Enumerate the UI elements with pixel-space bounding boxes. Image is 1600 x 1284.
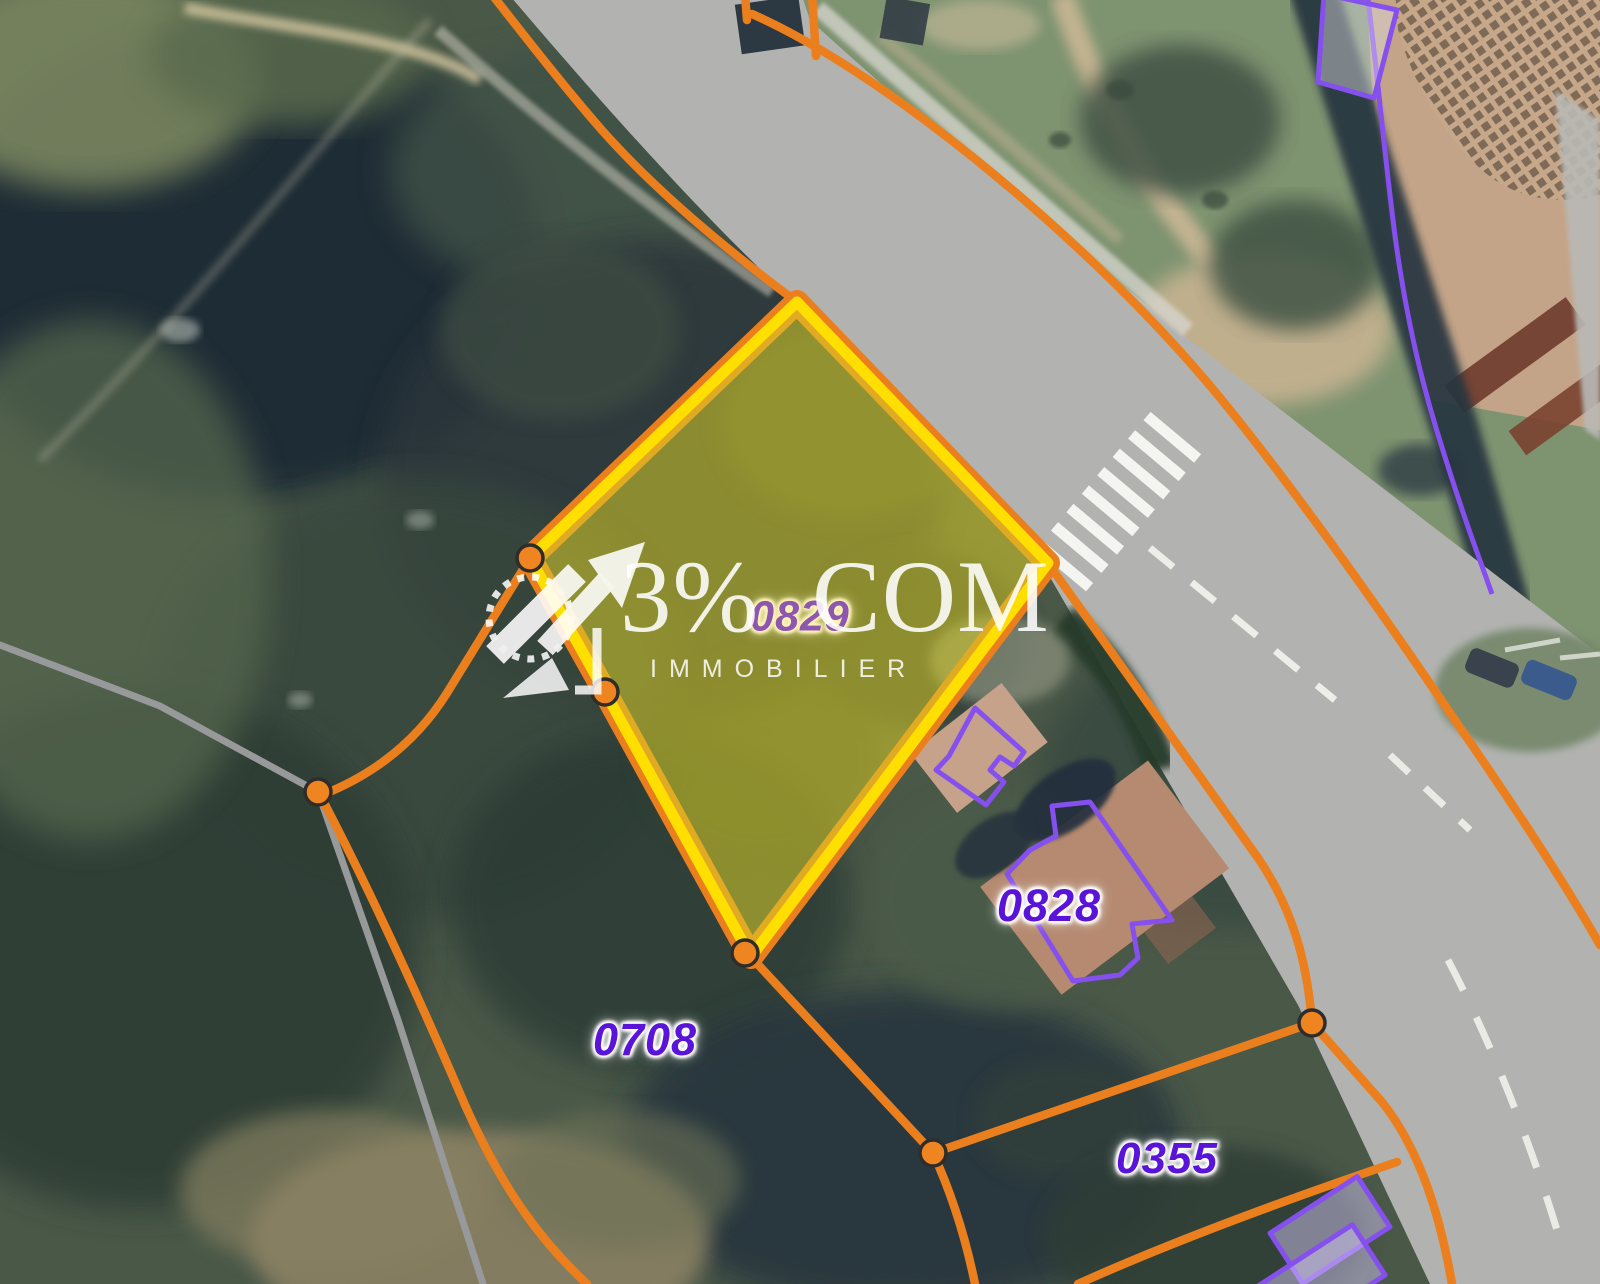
satellite-map-canvas[interactable] xyxy=(0,0,1600,1284)
parcel-label: 0355 xyxy=(1116,1134,1218,1184)
parcel-label-highlighted: 0829 xyxy=(750,593,850,642)
map-viewport[interactable]: 0829 0828 0708 0355 3% COM IMMOBILIER xyxy=(0,0,1600,1284)
parcel-vertex-dot xyxy=(920,1140,946,1166)
parcel-vertex-dot xyxy=(1299,1010,1325,1036)
cadastral-line xyxy=(745,0,747,20)
parcel-vertex-dot xyxy=(732,940,758,966)
parcel-vertex-dot xyxy=(305,779,331,805)
cadastral-line xyxy=(812,0,816,56)
parcel-label: 0708 xyxy=(593,1014,697,1066)
parcel-vertex-dot xyxy=(592,679,618,705)
parcel-vertex-dot xyxy=(517,545,543,571)
parcel-label: 0828 xyxy=(997,880,1101,932)
